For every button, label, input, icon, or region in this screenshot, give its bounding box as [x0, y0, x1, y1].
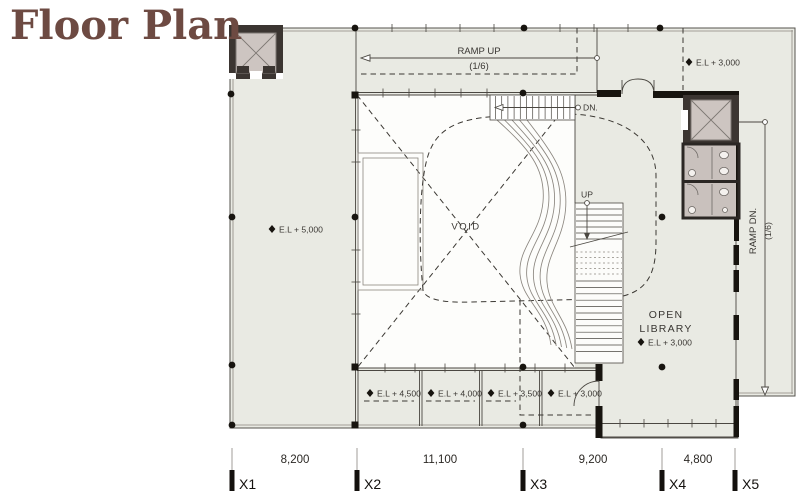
dim-span-4: 4,800	[684, 454, 713, 466]
grid-axis-x5: X5	[733, 448, 760, 492]
open-library-title-line2: LIBRARY	[639, 323, 692, 335]
dim-span-3: 9,200	[579, 454, 608, 466]
void-label: VOID	[451, 222, 480, 233]
svg-text:E.L + 3,500: E.L + 3,500	[498, 388, 542, 398]
toilet-block	[683, 144, 739, 218]
svg-text:E.L + 3,000: E.L + 3,000	[558, 388, 602, 398]
open-library-title-line1: OPEN	[649, 309, 684, 321]
ramp-up-slope-label: (1/6)	[469, 61, 489, 72]
grid-axis-x4: X4	[660, 448, 687, 492]
ramp-down-slope-label: (1/6)	[763, 222, 773, 240]
svg-text:X2: X2	[364, 476, 381, 492]
svg-text:X5: X5	[742, 476, 759, 492]
svg-text:X1: X1	[239, 476, 256, 492]
open-library-level: E.L + 3,000	[648, 337, 692, 347]
grid-axis-x3: X3	[521, 448, 548, 492]
svg-text:E.L + 5,000: E.L + 5,000	[279, 224, 323, 234]
dim-span-2: 11,100	[423, 454, 457, 466]
svg-text:X3: X3	[530, 476, 547, 492]
floor-plan-drawing: RAMP UP (1/6) VOID DN.	[0, 0, 800, 500]
stairs-up: UP	[570, 190, 628, 364]
dim-span-1: 8,200	[281, 454, 310, 466]
stairs-down-label: DN.	[583, 103, 598, 113]
dimension-row: X1 X2 X3 X4 X5 8,200	[230, 448, 760, 492]
page-title: Floor Plan	[10, 2, 242, 49]
svg-text:E.L + 4,500: E.L + 4,500	[377, 388, 421, 398]
ramp-down-label: RAMP DN.	[748, 208, 759, 254]
floor-plan-page: Floor Plan	[0, 0, 800, 500]
svg-text:E.L + 4,000: E.L + 4,000	[438, 388, 482, 398]
ramp-up-label: RAMP UP	[457, 46, 500, 57]
grid-axis-x1: X1	[230, 448, 257, 492]
stairs-up-label: UP	[581, 190, 593, 200]
svg-text:E.L + 3,000: E.L + 3,000	[696, 57, 740, 67]
grid-axis-x2: X2	[355, 448, 382, 492]
svg-text:X4: X4	[669, 476, 686, 492]
